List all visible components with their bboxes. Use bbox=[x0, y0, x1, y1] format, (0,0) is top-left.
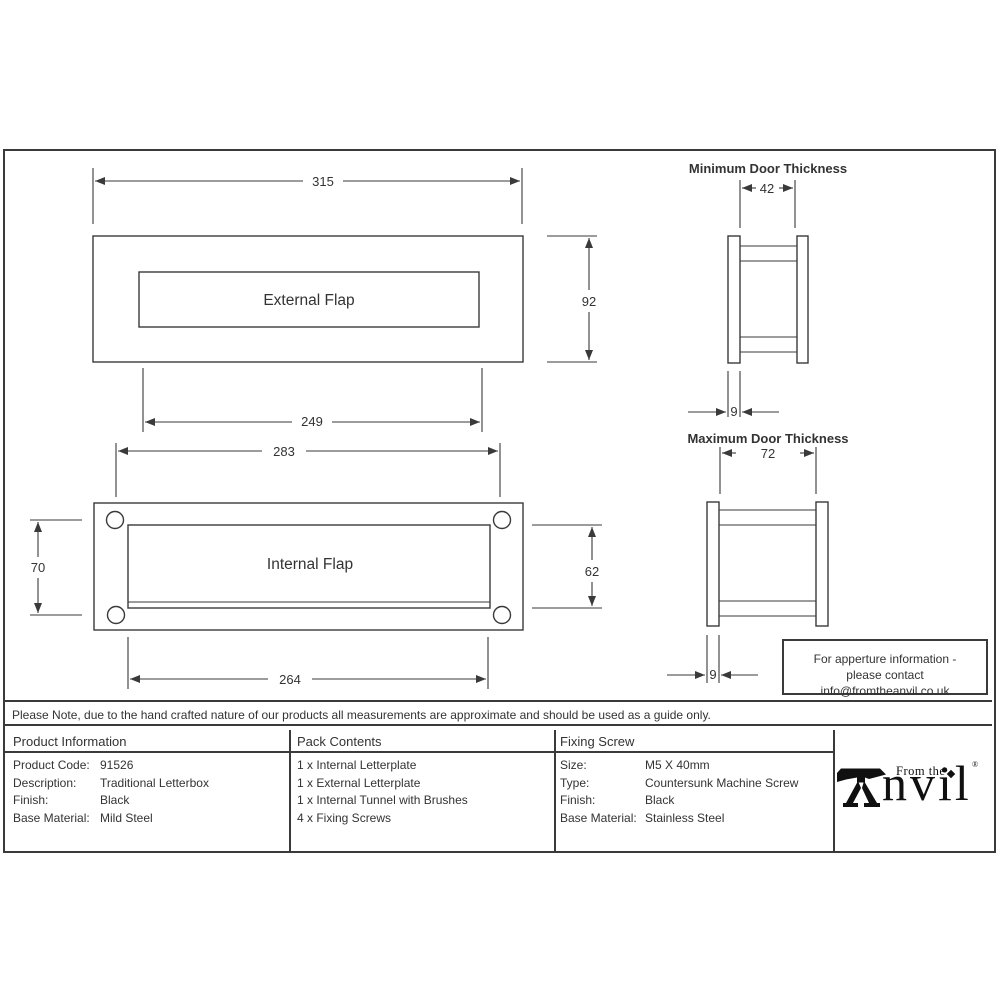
dim-external-width: 315 bbox=[93, 168, 522, 224]
dim-9-max-label: 9 bbox=[709, 667, 716, 682]
dim-internal-flap-height: 62 bbox=[532, 525, 602, 608]
external-plate-side bbox=[816, 502, 828, 626]
finish-value: Black bbox=[100, 792, 209, 810]
screw-hole-top-left bbox=[107, 512, 124, 529]
internal-flap-drawing: 283 Internal Flap 70 62 264 bbox=[30, 435, 630, 695]
dim-70-label: 70 bbox=[31, 560, 45, 575]
table-divider-2 bbox=[554, 730, 556, 853]
product-information-header: Product Information bbox=[13, 734, 126, 749]
aperture-info-line1: For apperture information - bbox=[784, 651, 986, 667]
anvil-icon bbox=[836, 766, 886, 809]
dim-315-label: 315 bbox=[312, 174, 334, 189]
disclaimer-row: Please Note, due to the hand crafted nat… bbox=[3, 700, 992, 726]
screw-finish-label: Finish: bbox=[560, 792, 637, 810]
dim-42-label: 42 bbox=[760, 181, 774, 196]
screw-hole-bottom-right bbox=[494, 607, 511, 624]
dim-264-label: 264 bbox=[279, 672, 301, 687]
fixing-screw-header: Fixing Screw bbox=[560, 734, 634, 749]
dim-internal-flap-width: 264 bbox=[128, 637, 488, 689]
logo-prefix: From the bbox=[896, 764, 945, 779]
product-code-label: Product Code: bbox=[13, 757, 90, 775]
pack-contents-item: 1 x Internal Letterplate bbox=[297, 757, 468, 775]
finish-label: Finish: bbox=[13, 792, 90, 810]
dim-249-label: 249 bbox=[301, 414, 323, 429]
dim-9-min-label: 9 bbox=[730, 404, 737, 419]
aperture-info-line2: please contact info@fromtheanvil.co.uk bbox=[784, 667, 986, 699]
screw-material-value: Stainless Steel bbox=[645, 810, 798, 828]
aperture-info-box: For apperture information - please conta… bbox=[782, 639, 988, 695]
dim-hole-spacing: 70 bbox=[30, 520, 82, 615]
table-header-underline bbox=[3, 751, 833, 753]
registered-icon: ® bbox=[972, 760, 978, 769]
dim-external-height: 92 bbox=[547, 236, 597, 362]
product-information-labels: Product Code: Description: Finish: Base … bbox=[13, 757, 90, 827]
screw-hole-top-right bbox=[494, 512, 511, 529]
dim-92-label: 92 bbox=[582, 294, 596, 309]
dim-min-thickness: 42 bbox=[740, 180, 795, 228]
dim-283-label: 283 bbox=[273, 444, 295, 459]
external-flap-drawing: 315 External Flap 92 249 bbox=[60, 160, 620, 440]
screw-finish-value: Black bbox=[645, 792, 798, 810]
description-value: Traditional Letterbox bbox=[100, 775, 209, 793]
spec-sheet-page: 315 External Flap 92 249 283 bbox=[0, 0, 1000, 1000]
dim-internal-width: 283 bbox=[116, 443, 500, 497]
type-label: Type: bbox=[560, 775, 637, 793]
internal-flap-label: Internal Flap bbox=[267, 556, 353, 573]
base-material-value: Mild Steel bbox=[100, 810, 209, 828]
dim-72-label: 72 bbox=[761, 446, 775, 461]
dim-min-plate: 9 bbox=[688, 371, 779, 419]
pack-contents-item: 1 x Internal Tunnel with Brushes bbox=[297, 792, 468, 810]
dim-max-plate: 9 bbox=[667, 635, 758, 683]
description-label: Description: bbox=[13, 775, 90, 793]
fixing-screw-values: M5 X 40mm Countersunk Machine Screw Blac… bbox=[645, 757, 798, 827]
external-flap-label: External Flap bbox=[263, 292, 354, 309]
external-plate-side bbox=[797, 236, 808, 363]
internal-plate-side bbox=[728, 236, 740, 363]
screw-material-label: Base Material: bbox=[560, 810, 637, 828]
tunnel-lines bbox=[719, 510, 816, 616]
pack-contents-item: 4 x Fixing Screws bbox=[297, 810, 468, 828]
screw-hole-bottom-left bbox=[108, 607, 125, 624]
from-the-anvil-logo: nvil From the ® bbox=[836, 758, 988, 820]
dim-external-flap-width: 249 bbox=[143, 368, 482, 432]
min-door-thickness-drawing: Minimum Door Thickness 42 9 bbox=[680, 155, 880, 425]
pack-contents-list: 1 x Internal Letterplate 1 x External Le… bbox=[297, 757, 468, 827]
disclaimer-text: Please Note, due to the hand crafted nat… bbox=[12, 708, 711, 722]
size-value: M5 X 40mm bbox=[645, 757, 798, 775]
fixing-screw-labels: Size: Type: Finish: Base Material: bbox=[560, 757, 637, 827]
pack-contents-item: 1 x External Letterplate bbox=[297, 775, 468, 793]
tunnel-lines bbox=[740, 246, 797, 352]
product-information-values: 91526 Traditional Letterbox Black Mild S… bbox=[100, 757, 209, 827]
min-door-title: Minimum Door Thickness bbox=[689, 161, 847, 176]
size-label: Size: bbox=[560, 757, 637, 775]
type-value: Countersunk Machine Screw bbox=[645, 775, 798, 793]
dim-max-thickness: 72 bbox=[720, 446, 816, 494]
table-divider-3 bbox=[833, 730, 835, 853]
internal-plate-side bbox=[707, 502, 719, 626]
base-material-label: Base Material: bbox=[13, 810, 90, 828]
dim-62-label: 62 bbox=[585, 564, 599, 579]
product-code-value: 91526 bbox=[100, 757, 209, 775]
pack-contents-header: Pack Contents bbox=[297, 734, 382, 749]
max-door-title: Maximum Door Thickness bbox=[687, 431, 848, 446]
table-divider-1 bbox=[289, 730, 291, 853]
